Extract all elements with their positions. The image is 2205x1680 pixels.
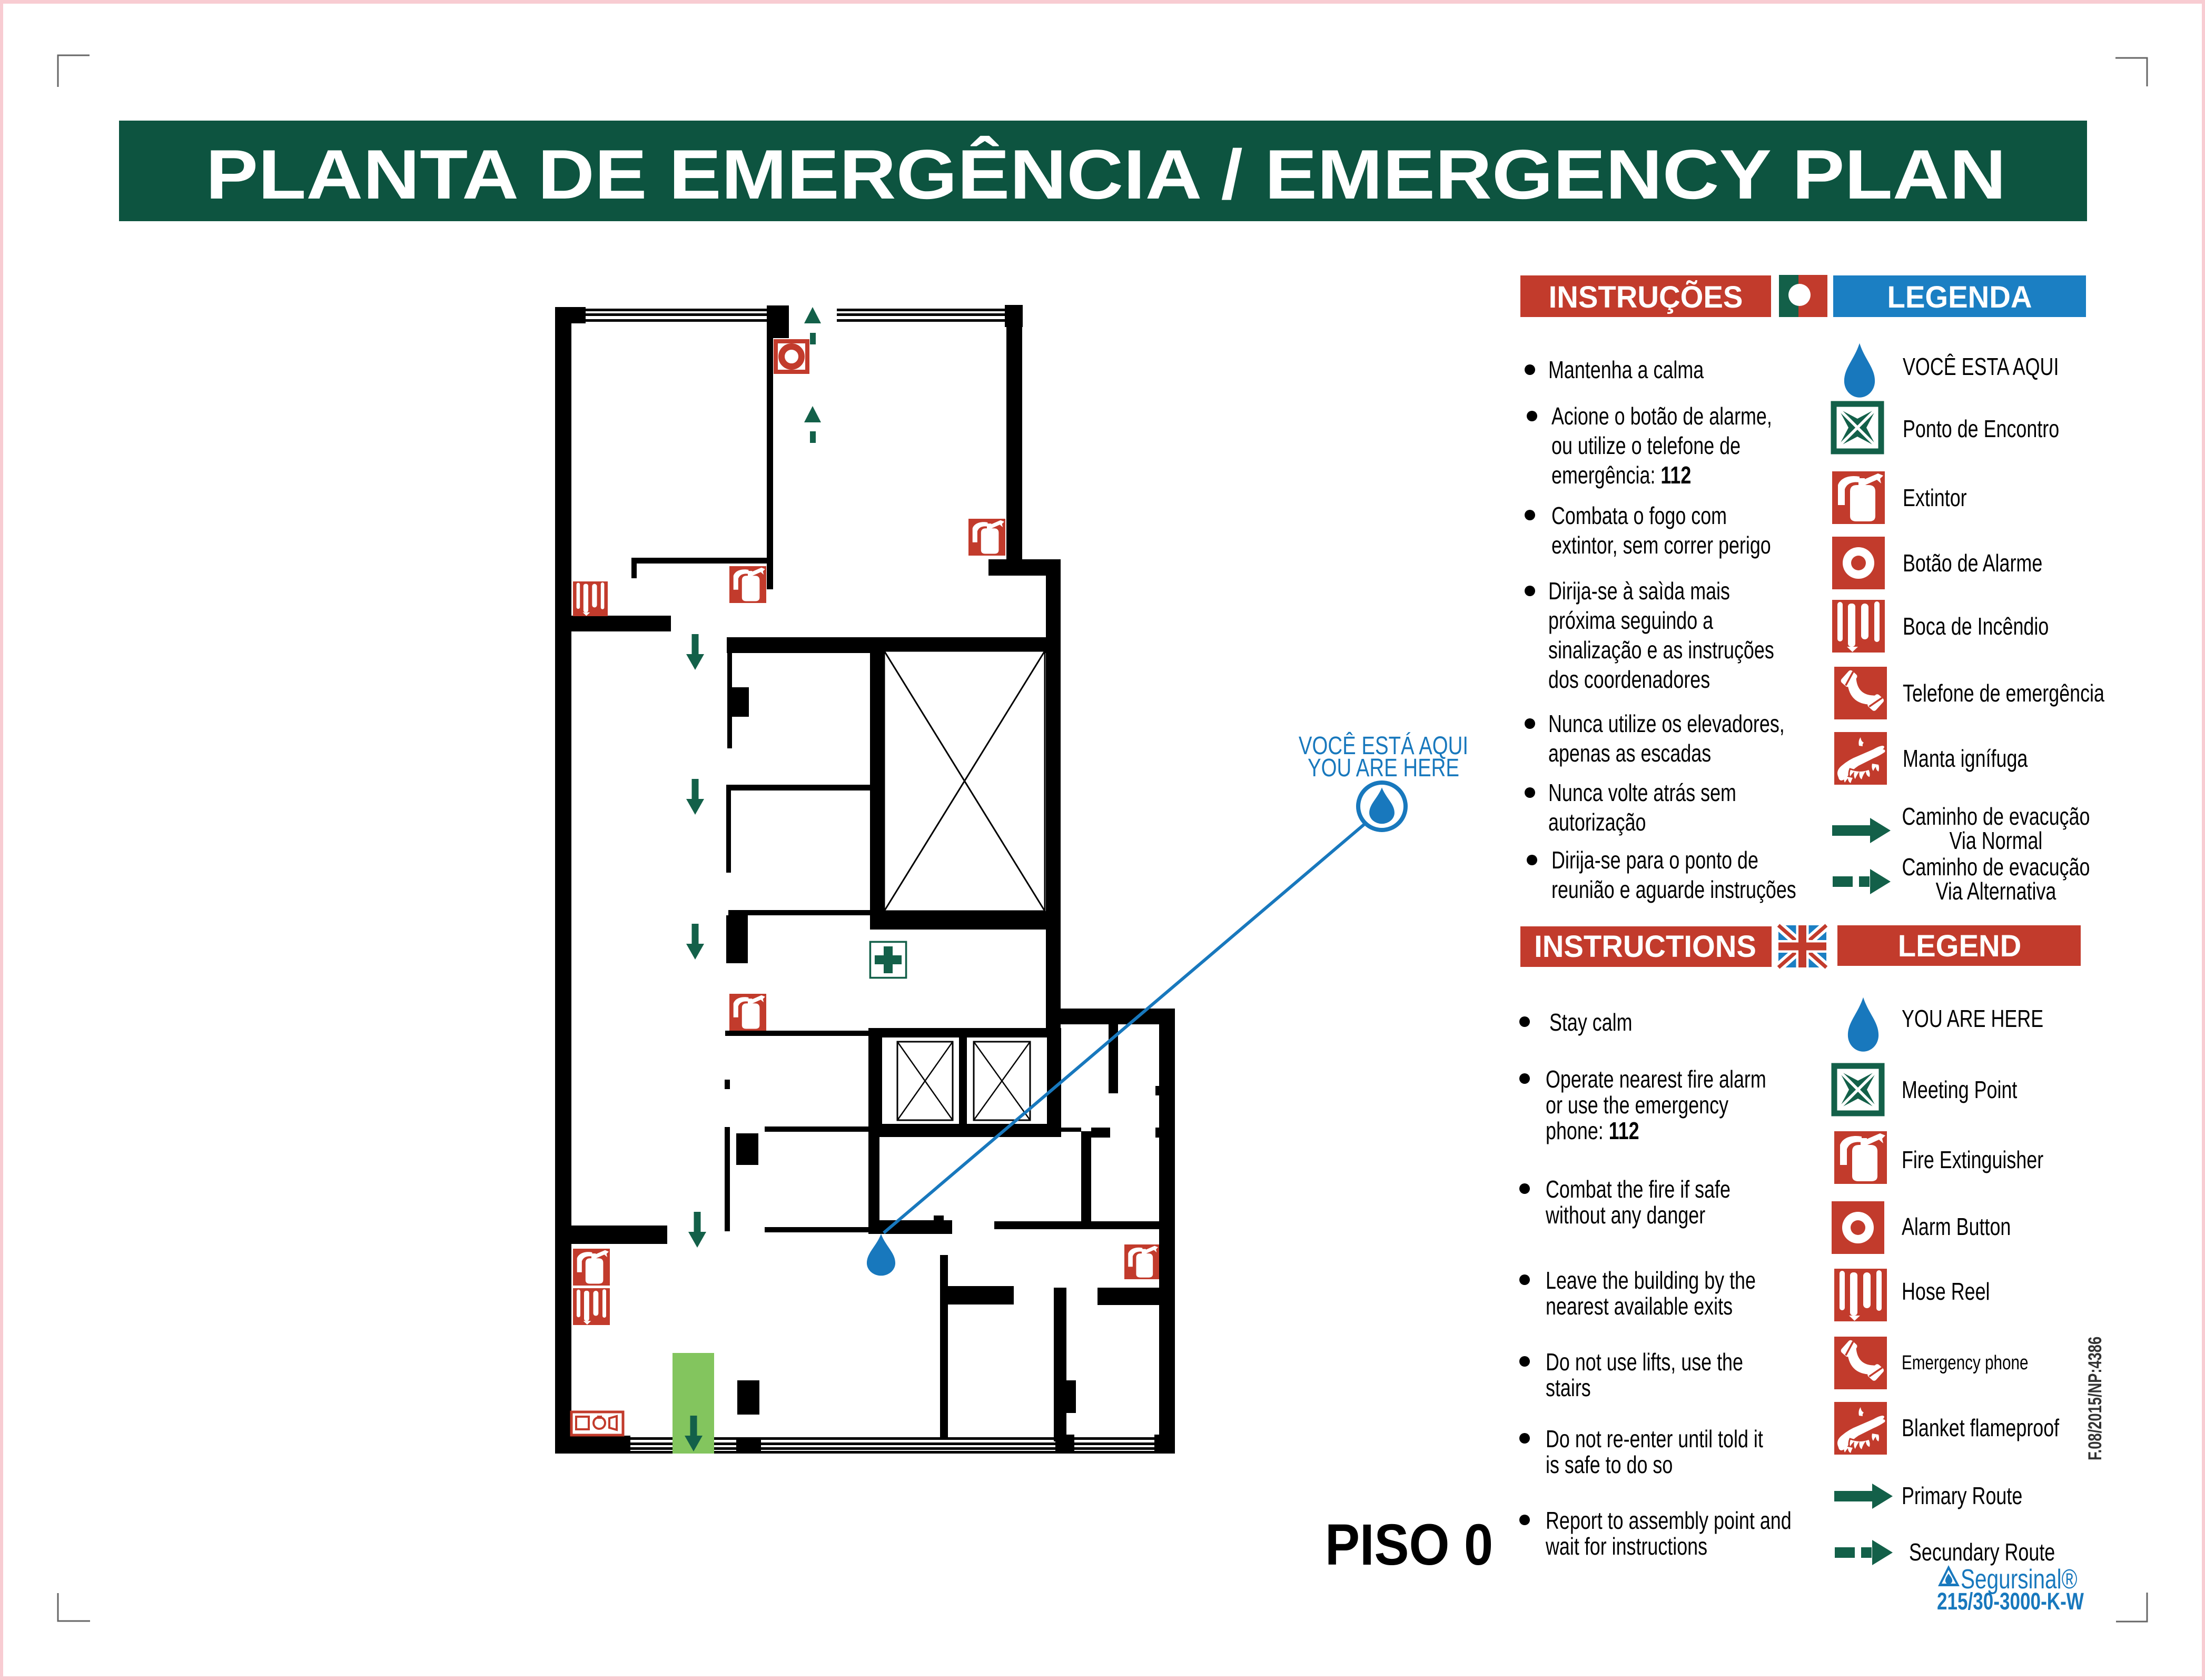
svg-text:emergência: 112: emergência: 112 — [1551, 462, 1691, 489]
svg-text:Mantenha a calma: Mantenha a calma — [1548, 357, 1704, 383]
svg-text:INSTRUÇÕES: INSTRUÇÕES — [1549, 280, 1743, 314]
svg-text:Nunca utilize os elevadores,: Nunca utilize os elevadores, — [1548, 710, 1785, 737]
svg-text:LEGENDA: LEGENDA — [1887, 280, 2032, 314]
svg-text:LEGEND: LEGEND — [1898, 929, 2021, 963]
svg-text:without any danger: without any danger — [1545, 1202, 1705, 1229]
svg-text:Botão de Alarme: Botão de Alarme — [1903, 550, 2042, 577]
svg-text:sinalização e as instruções: sinalização e as instruções — [1548, 637, 1774, 664]
svg-text:apenas as escadas: apenas as escadas — [1548, 740, 1711, 767]
svg-text:Caminho de evacução: Caminho de evacução — [1902, 854, 2090, 881]
svg-text:nearest available exits: nearest available exits — [1546, 1293, 1733, 1320]
svg-text:is safe to do so: is safe to do so — [1546, 1451, 1673, 1478]
svg-text:Extintor: Extintor — [1903, 485, 1967, 511]
svg-text:or use the emergency: or use the emergency — [1546, 1092, 1728, 1119]
svg-text:Dirija-se para o ponto de: Dirija-se para o ponto de — [1551, 847, 1758, 874]
svg-text:Secundary Route: Secundary Route — [1909, 1539, 2055, 1566]
svg-text:Stay calm: Stay calm — [1549, 1009, 1633, 1036]
svg-text:Caminho de evacução: Caminho de evacução — [1902, 803, 2090, 830]
svg-text:Telefone de emergência: Telefone de emergência — [1903, 680, 2104, 707]
svg-text:Leave the building by the: Leave the building by the — [1546, 1267, 1756, 1294]
svg-text:Acione o botão de alarme,: Acione o botão de alarme, — [1551, 403, 1772, 430]
svg-text:Report to assembly point and: Report to assembly point and — [1546, 1507, 1792, 1534]
svg-text:Meeting Point: Meeting Point — [1902, 1076, 2018, 1103]
svg-text:Hose Reel: Hose Reel — [1902, 1278, 1990, 1305]
svg-text:Via Alternativa: Via Alternativa — [1936, 878, 2056, 905]
svg-text:Blanket flameproof: Blanket flameproof — [1902, 1415, 2060, 1441]
svg-text:Do not use lifts, use the: Do not use lifts, use the — [1546, 1349, 1743, 1376]
svg-text:PLANTA DE EMERGÊNCIA / EMERGEN: PLANTA DE EMERGÊNCIA / EMERGENCY PLAN — [206, 135, 2006, 214]
svg-text:VOCÊ ESTA AQUI: VOCÊ ESTA AQUI — [1903, 353, 2059, 380]
svg-text:F.08/2015/NP:4386: F.08/2015/NP:4386 — [2085, 1337, 2105, 1460]
svg-text:ou utilize o telefone de: ou utilize o telefone de — [1551, 432, 1741, 459]
svg-text:extintor, sem correr perigo: extintor, sem correr perigo — [1551, 532, 1771, 559]
svg-text:215/30-3000-K-W: 215/30-3000-K-W — [1937, 1588, 2084, 1615]
svg-text:Operate nearest fire alarm: Operate nearest fire alarm — [1546, 1066, 1766, 1093]
svg-text:stairs: stairs — [1546, 1375, 1591, 1401]
svg-text:Ponto de Encontro: Ponto de Encontro — [1903, 416, 2059, 442]
svg-text:Dirija-se à saìda mais: Dirija-se à saìda mais — [1548, 578, 1730, 605]
svg-text:INSTRUCTIONS: INSTRUCTIONS — [1534, 930, 1756, 964]
svg-text:phone: 112: phone: 112 — [1546, 1118, 1639, 1144]
svg-text:Nunca volte atrás sem: Nunca volte atrás sem — [1548, 779, 1736, 806]
svg-text:Via Normal: Via Normal — [1950, 827, 2043, 854]
svg-text:Combata o fogo com: Combata o fogo com — [1551, 502, 1727, 529]
svg-text:PISO 0: PISO 0 — [1325, 1513, 1493, 1577]
svg-text:Fire Extinguisher: Fire Extinguisher — [1902, 1147, 2043, 1173]
svg-text:Emergency phone: Emergency phone — [1902, 1352, 2028, 1374]
svg-text:Alarm Button: Alarm Button — [1902, 1213, 2011, 1240]
svg-text:YOU ARE HERE: YOU ARE HERE — [1308, 754, 1459, 782]
svg-text:dos coordenadores: dos coordenadores — [1548, 666, 1710, 693]
svg-text:YOU ARE HERE: YOU ARE HERE — [1902, 1005, 2043, 1032]
svg-text:autorização: autorização — [1548, 809, 1646, 836]
svg-text:Do not re-enter until told it: Do not re-enter until told it — [1546, 1426, 1763, 1452]
svg-text:Boca de Incêndio: Boca de Incêndio — [1903, 613, 2049, 640]
svg-text:próxima seguindo a: próxima seguindo a — [1548, 607, 1713, 634]
svg-text:Combat the fire if safe: Combat the fire if safe — [1546, 1176, 1731, 1203]
svg-text:wait for instructions: wait for instructions — [1545, 1533, 1707, 1560]
svg-text:Manta ignífuga: Manta ignífuga — [1903, 745, 2028, 772]
svg-text:Primary Route: Primary Route — [1902, 1483, 2022, 1509]
svg-text:reunião e aguarde instruções: reunião e aguarde instruções — [1551, 876, 1796, 903]
